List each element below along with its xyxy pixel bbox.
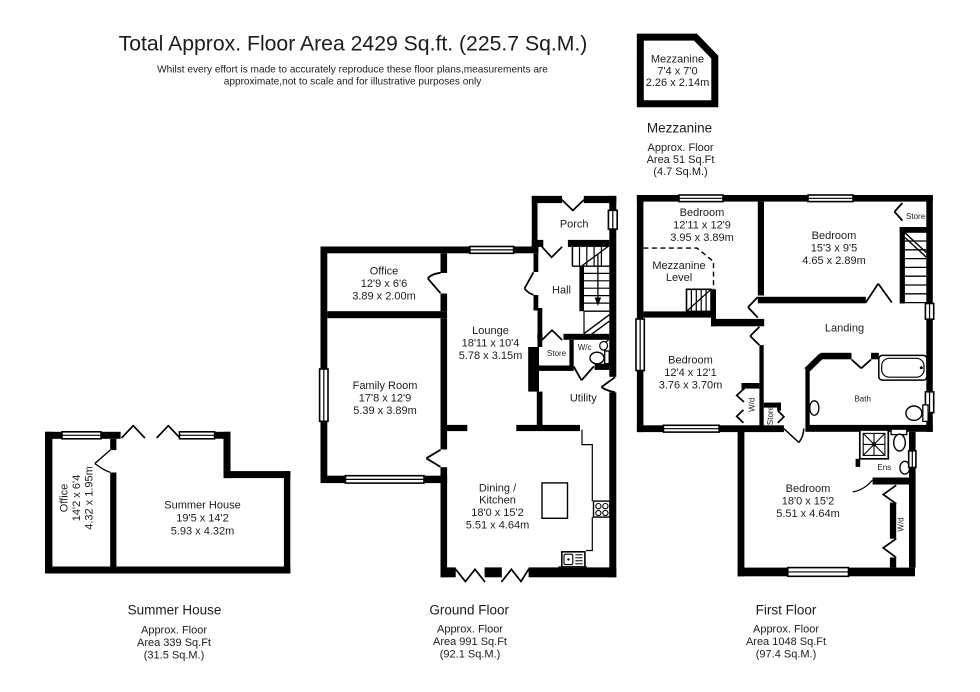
svg-text:Approx. Floor: Approx. Floor [647,142,713,154]
svg-text:Office: Office [59,484,71,513]
svg-text:Area 991 Sq.Ft: Area 991 Sq.Ft [433,636,507,648]
svg-text:Area 51 Sq.Ft: Area 51 Sq.Ft [647,154,715,166]
svg-text:Mezzanine: Mezzanine [647,120,712,135]
svg-text:(31.5 Sq.M.): (31.5 Sq.M.) [144,649,205,661]
svg-text:Utility: Utility [570,393,597,405]
svg-text:4.32 x 1.95m: 4.32 x 1.95m [84,466,96,530]
svg-text:Ground Floor: Ground Floor [429,603,509,618]
svg-text:18'11 x 10'4: 18'11 x 10'4 [462,337,520,349]
svg-text:W/d: W/d [897,517,906,531]
svg-text:approximate,not to scale and f: approximate,not to scale and for illustr… [224,77,482,88]
svg-text:18'0 x 15'2: 18'0 x 15'2 [471,507,524,519]
svg-text:Hall: Hall [552,285,571,297]
svg-text:Mezzanine: Mezzanine [652,260,705,272]
svg-text:Mezzanine: Mezzanine [651,54,704,66]
svg-text:12'4 x 12'1: 12'4 x 12'1 [664,367,717,379]
svg-text:3.76 x 3.70m: 3.76 x 3.70m [659,379,723,391]
svg-text:2.26 x 2.14m: 2.26 x 2.14m [646,77,710,89]
svg-text:Family Room: Family Room [353,380,418,392]
svg-text:14'2 x 6'4: 14'2 x 6'4 [71,475,83,521]
svg-text:Summer House: Summer House [164,500,240,512]
svg-text:Total Approx. Floor Area 2429: Total Approx. Floor Area 2429 Sq.ft. (22… [119,33,588,56]
svg-text:Landing: Landing [825,323,864,335]
svg-text:19'5 x 14'2: 19'5 x 14'2 [176,513,229,525]
svg-text:5.39 x 3.89m: 5.39 x 3.89m [353,405,417,417]
svg-text:Approx. Floor: Approx. Floor [753,624,819,636]
svg-text:Lounge: Lounge [472,325,509,337]
svg-text:17'8 x 12'9: 17'8 x 12'9 [359,393,412,405]
svg-text:Bedroom: Bedroom [680,207,725,219]
svg-text:Approx. Floor: Approx. Floor [141,625,207,637]
svg-text:7'4 x 7'0: 7'4 x 7'0 [657,65,697,77]
svg-text:3.95 x 3.89m: 3.95 x 3.89m [670,232,734,244]
svg-text:Store: Store [906,212,926,221]
svg-text:Area 339 Sq.Ft: Area 339 Sq.Ft [137,637,211,649]
svg-text:Bedroom: Bedroom [812,230,857,242]
svg-text:12'11 x 12'9: 12'11 x 12'9 [673,219,731,231]
svg-text:18'0 x 15'2: 18'0 x 15'2 [782,495,835,507]
svg-text:5.51 x 4.64m: 5.51 x 4.64m [466,520,530,532]
svg-text:Porch: Porch [560,219,589,231]
svg-text:First Floor: First Floor [756,603,817,618]
svg-text:Ens: Ens [877,463,891,472]
svg-text:Area 1048 Sq.Ft: Area 1048 Sq.Ft [746,636,826,648]
svg-text:W/d: W/d [748,398,757,412]
svg-text:Office: Office [370,266,399,278]
svg-text:Store: Store [547,349,567,358]
svg-text:5.51 x 4.64m: 5.51 x 4.64m [776,508,840,520]
svg-text:(4.7 Sq.M.): (4.7 Sq.M.) [653,166,707,178]
svg-text:Level: Level [666,272,692,284]
svg-text:(97.4 Sq.M.): (97.4 Sq.M.) [756,648,817,660]
svg-text:15'3 x 9'5: 15'3 x 9'5 [811,243,857,255]
svg-text:Bedroom: Bedroom [668,355,713,367]
svg-text:Kitchen: Kitchen [479,495,516,507]
svg-text:3.89 x 2.00m: 3.89 x 2.00m [352,290,416,302]
svg-text:5.93 x 4.32m: 5.93 x 4.32m [171,526,235,538]
svg-text:Summer House: Summer House [128,603,222,618]
svg-text:W/c: W/c [578,343,592,352]
svg-text:Bath: Bath [854,395,870,404]
svg-text:(92.1 Sq.M.): (92.1 Sq.M.) [440,648,501,660]
svg-text:Dining /: Dining / [479,482,517,494]
svg-text:Bedroom: Bedroom [786,483,831,495]
svg-text:Store: Store [766,405,775,425]
svg-text:12'9 x 6'6: 12'9 x 6'6 [361,278,407,290]
svg-text:5.78 x 3.15m: 5.78 x 3.15m [459,350,523,362]
svg-text:4.65 x 2.89m: 4.65 x 2.89m [802,255,866,267]
svg-text:Approx. Floor: Approx. Floor [437,624,503,636]
svg-text:Whilst every effort is made to: Whilst every effort is made to accuratel… [157,65,548,76]
